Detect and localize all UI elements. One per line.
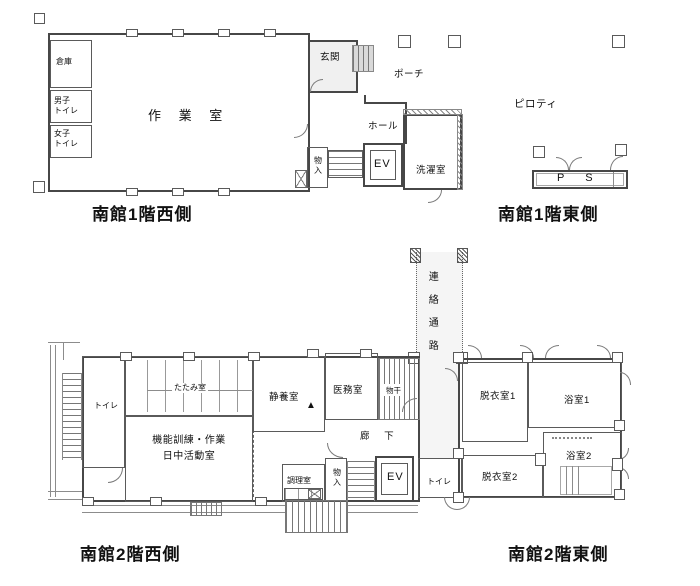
label-elevator-2f: EV xyxy=(387,471,404,485)
pilaster xyxy=(614,489,625,500)
pilaster xyxy=(614,420,625,431)
label-bath1: 浴室1 xyxy=(564,395,590,407)
label-elevator-1f: EV xyxy=(374,158,391,172)
entrance-mat-hatch xyxy=(352,45,374,72)
label-activity-room: 機能訓練・作業 日中活動室 xyxy=(130,433,248,465)
pipe-shaft-divider xyxy=(613,172,614,187)
pilaster xyxy=(183,352,195,361)
laundry-hatch-right xyxy=(457,114,463,190)
pilaster xyxy=(172,188,184,196)
label-corridor-2f: 廊 下 xyxy=(360,431,400,443)
label-mens-toilet: 男子 トイレ xyxy=(54,96,78,116)
label-bath2: 浴室2 xyxy=(566,451,592,463)
door-arc-top xyxy=(468,345,482,358)
label-laundry: 洗濯室 xyxy=(416,165,446,177)
exterior-stairs-west xyxy=(62,373,82,460)
walkway-line xyxy=(348,505,418,506)
label-toilet-2fw: トイレ xyxy=(94,401,118,411)
label-closet-1f: 物 入 xyxy=(312,156,324,176)
laundry-hatch-top xyxy=(403,109,462,115)
label-drying: 物干 xyxy=(386,386,401,395)
pilaster xyxy=(150,497,162,506)
label-storage: 倉庫 xyxy=(56,57,72,67)
pilaster xyxy=(453,352,464,363)
door-arc-ps-left xyxy=(556,157,569,170)
pilaster xyxy=(82,497,94,506)
label-porch: ポーチ xyxy=(394,69,424,81)
canopy-line xyxy=(55,345,56,497)
free-column xyxy=(34,13,45,24)
door-arc-top xyxy=(597,345,611,358)
bath2-stair-line xyxy=(572,466,573,495)
door-arc-ps-side xyxy=(610,156,623,170)
label-rest-room: 静養室 xyxy=(269,392,299,404)
label-undress2: 脱衣室2 xyxy=(482,472,518,484)
caption-1f-east: 南館1階東側 xyxy=(498,204,598,225)
label-kitchen: 調理室 xyxy=(287,476,311,486)
label-pipe-shaft: P S xyxy=(557,172,602,186)
pilaster xyxy=(264,29,276,37)
label-workroom: 作 業 室 xyxy=(148,108,229,124)
label-entrance: 玄関 xyxy=(320,52,340,64)
sink-fixture-1f xyxy=(295,170,307,188)
pilaster xyxy=(218,29,230,37)
canopy-line xyxy=(48,499,82,500)
door-arc-laundry xyxy=(428,190,442,203)
pilaster xyxy=(535,453,546,466)
door-arc-right xyxy=(620,372,631,385)
label-hall: ホール xyxy=(368,121,398,133)
kitchen-sink xyxy=(308,489,321,499)
label-connecting-corridor: 連 絡 通 路 xyxy=(427,266,441,358)
door-arc-ps-right xyxy=(569,157,582,170)
floor-plan-sheet: 倉庫 男子 トイレ 女子 トイレ 作 業 室 玄関 ポーチ ホール 物 入 EV… xyxy=(0,0,700,586)
pilaster xyxy=(126,188,138,196)
bath2-partition-ticks xyxy=(552,437,592,439)
pilaster xyxy=(120,352,132,361)
canopy-line xyxy=(48,342,80,343)
label-piloti: ピロティ xyxy=(514,98,557,111)
door-arc-top xyxy=(545,345,559,358)
canopy-line xyxy=(63,343,64,360)
label-closet-2f: 物 入 xyxy=(331,468,343,488)
caption-2f-west: 南館2階西側 xyxy=(80,544,180,565)
label-toilet-2fe: トイレ xyxy=(427,477,451,487)
walkway-line xyxy=(82,512,285,513)
hall-wall-h1 xyxy=(364,102,407,104)
porch-column xyxy=(398,35,411,48)
pilaster xyxy=(248,352,260,361)
caption-2f-east: 南館2階東側 xyxy=(508,544,608,565)
bath2-stair-line xyxy=(578,466,579,495)
pilaster xyxy=(453,492,464,503)
label-medical-room: 医務室 xyxy=(333,385,363,397)
room-toilet-2fw xyxy=(82,356,125,468)
pilaster xyxy=(255,497,267,506)
corridor-post-hatch xyxy=(457,248,468,263)
pilaster xyxy=(126,29,138,37)
pilaster xyxy=(218,188,230,196)
piloti-column xyxy=(533,146,545,158)
grand-exterior-stairs xyxy=(285,500,348,533)
pilaster xyxy=(453,448,464,459)
porch-column xyxy=(448,35,461,48)
room-laundry xyxy=(403,114,462,190)
pilaster xyxy=(612,352,623,363)
caption-1f-west: 南館1階西側 xyxy=(92,204,192,225)
bath2-tub xyxy=(560,466,612,495)
piloti-column xyxy=(615,144,627,156)
bath2-stair-line xyxy=(566,466,567,495)
free-column xyxy=(33,181,45,193)
pilaster xyxy=(307,349,319,358)
pilaster xyxy=(172,29,184,37)
label-undress1: 脱衣室1 xyxy=(480,391,516,403)
small-exterior-stairs xyxy=(190,502,222,516)
pilaster xyxy=(612,458,623,471)
pilaster xyxy=(360,349,372,358)
walkway-line xyxy=(348,512,418,513)
canopy-line xyxy=(50,345,51,497)
corridor-post-hatch xyxy=(410,248,421,263)
label-womens-toilet: 女子 トイレ xyxy=(54,129,78,149)
label-tatami: たたみ室 xyxy=(172,383,208,393)
triangle-marker: ▲ xyxy=(306,400,316,413)
stairs-2f xyxy=(347,461,375,501)
canopy-line xyxy=(48,491,82,492)
pilaster xyxy=(522,352,533,363)
stairs-1f xyxy=(328,150,363,178)
porch-column xyxy=(612,35,625,48)
